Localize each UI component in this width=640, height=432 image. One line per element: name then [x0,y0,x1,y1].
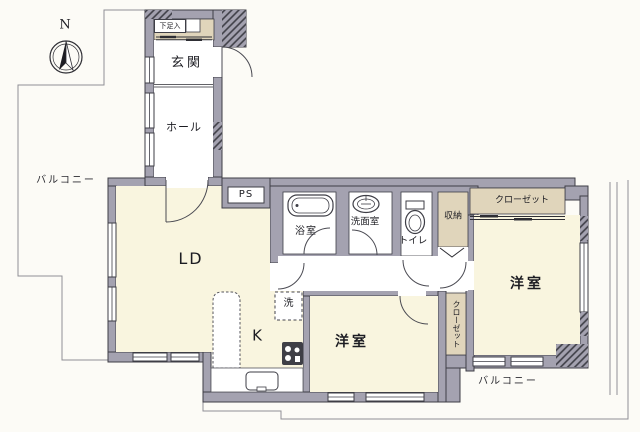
kitchen-label: K [252,329,264,344]
wall-hall-bottom-right [208,177,222,186]
laundry-label: 洗 [284,299,295,309]
window [511,357,543,366]
wash-basin [353,196,379,213]
window [108,223,116,277]
entrance-label: 玄関 [171,57,203,70]
shoe-box-label: 下足入 [154,19,186,33]
bathtub [288,195,333,216]
window [473,357,505,366]
balcony-bottom-label: バルコニー [478,377,538,387]
balcony-left-label: バルコニー [36,176,96,186]
window [171,353,199,361]
wall-hall-bottom-left [145,177,166,186]
wall-kitchen-divider [303,288,310,392]
window [366,393,424,401]
shoe-box-notch [186,19,200,32]
compass-north-label: N [59,19,70,32]
floor-plan: 下足入 N 玄関 ホール バルコニー PS 浴室 洗面室 トイレ 収納 クローゼ… [0,0,640,432]
kitchen-sink [246,372,278,391]
pipe-space-label: PS [239,190,253,200]
window [145,133,154,166]
window [145,57,154,83]
toilet-bowl [406,201,425,234]
opening-entrance-door [213,47,222,77]
closet-top-label: クローゼット [495,197,549,206]
washroom-label: 洗面室 [351,217,380,227]
bedroom-bottom-label: 洋室 [335,335,369,349]
opening-hall-ld [166,177,208,188]
opening-ld-corridor [270,263,278,291]
bathroom-label: 浴室 [295,227,317,237]
window [328,393,354,401]
floor-plan-drawing [0,0,640,432]
toilet-label: トイレ [399,236,428,246]
window [580,243,588,312]
storage-label: 収納 [444,213,462,222]
corridor-floor [278,256,468,291]
bedroom-bottom-floor [310,296,438,392]
window [133,353,167,361]
opening-bedroom-right [466,261,474,290]
stove [282,342,303,365]
window [108,287,116,321]
living-dining-label: LD [178,251,203,267]
window [145,93,154,128]
hall-label: ホール [166,122,202,133]
wall-midcloset-west [438,291,446,402]
counter-peninsula [213,292,240,368]
opening-bedroom-bottom [398,288,426,296]
closet-middle-label: クローゼット [452,300,460,348]
bedroom-right-label: 洋室 [510,277,544,291]
